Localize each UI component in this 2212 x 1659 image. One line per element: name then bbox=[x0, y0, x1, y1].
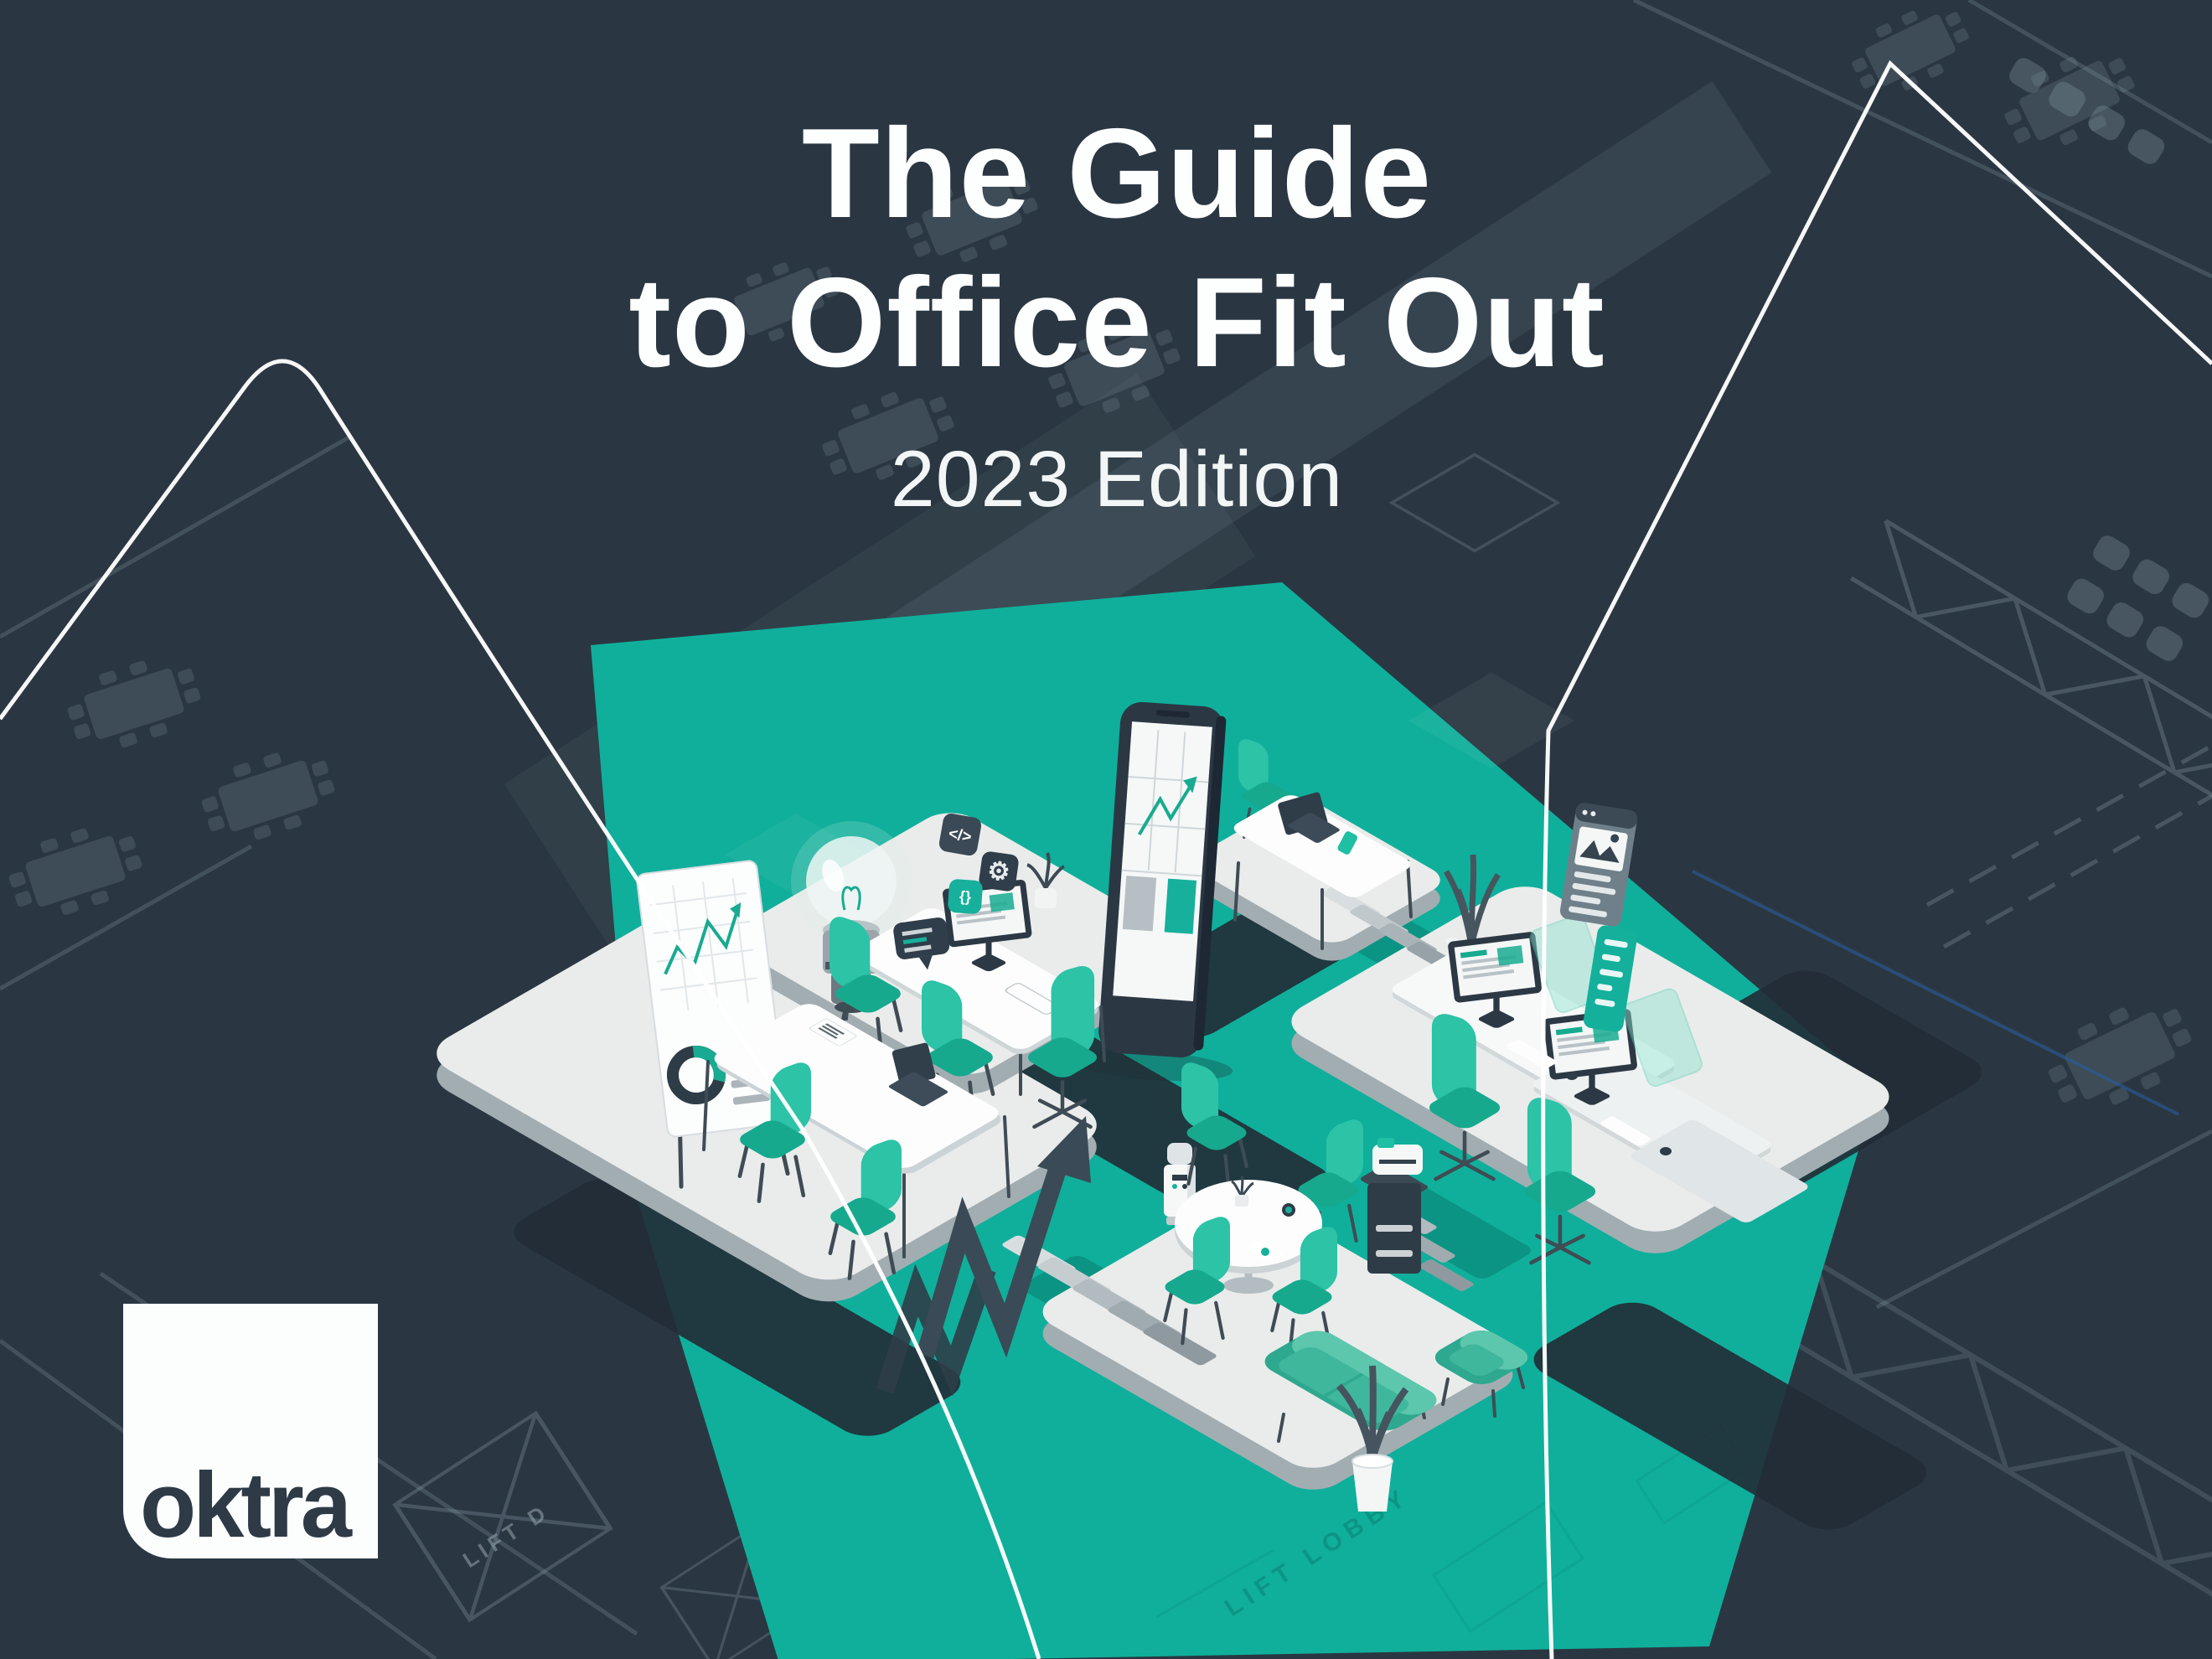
title-line-1: The Guide bbox=[22, 99, 2212, 248]
gear-icon: ⚙ bbox=[978, 850, 1020, 892]
title-line-2: to Office Fit Out bbox=[22, 248, 2212, 397]
svg-text:⚙: ⚙ bbox=[985, 856, 1011, 886]
title-block: The Guide to Office Fit Out 2023 Edition bbox=[0, 99, 2212, 525]
braces-icon: {} bbox=[948, 879, 984, 915]
svg-text:{}: {} bbox=[959, 888, 971, 906]
code-icon: </> bbox=[938, 812, 982, 856]
cover-page: LIFT D LIFT LOBBY bbox=[0, 0, 2212, 1659]
edition-subtitle: 2023 Edition bbox=[22, 434, 2212, 525]
oktra-logo-text: oktra bbox=[140, 1460, 349, 1552]
oktra-logo: oktra bbox=[123, 1304, 378, 1558]
